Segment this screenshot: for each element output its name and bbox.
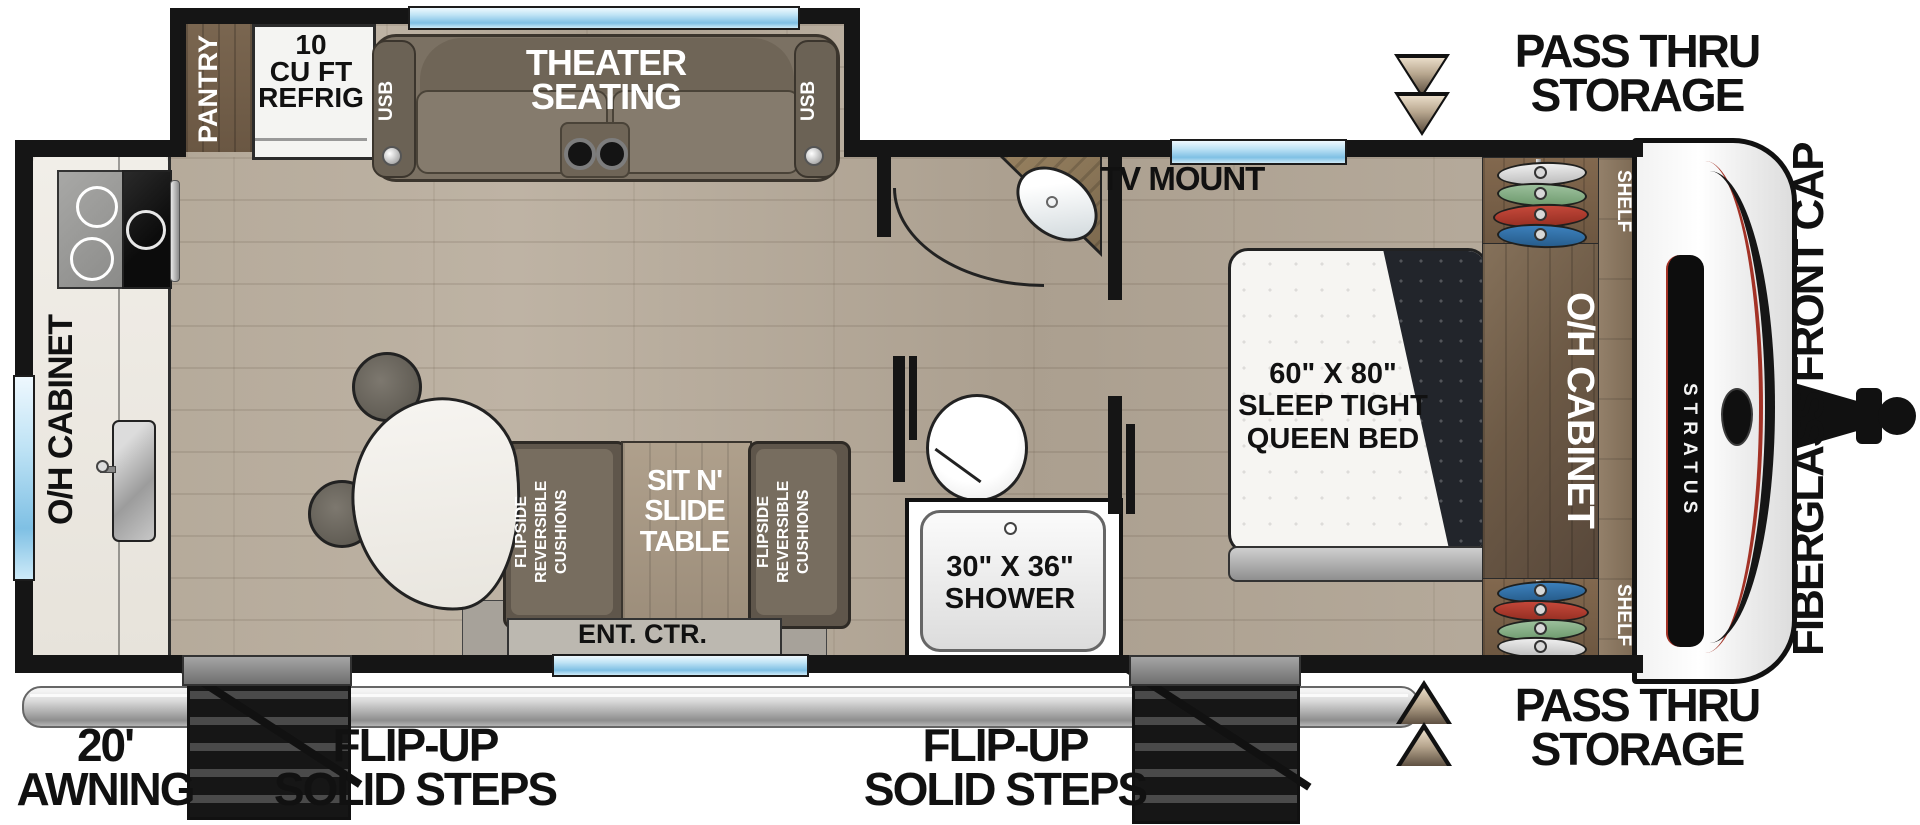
awning-line: AWNING (10, 768, 200, 812)
shower-line: 30" X 36" (918, 552, 1102, 584)
refrigerator-label: 10 CU FT REFRIG (254, 32, 368, 112)
window-slideout (408, 6, 800, 30)
window-door-side (552, 654, 809, 677)
bedroom-wall-stub (1126, 424, 1135, 514)
refrigerator-door-seam (255, 138, 367, 141)
stratus-brand-label: STRATUS (1670, 269, 1700, 635)
usb-port-label: USB (800, 58, 830, 144)
entry-door-right (1129, 655, 1301, 686)
flipside-cushions-label-right: FLIPSIDE REVERSIBLE CUSHIONS (754, 452, 840, 612)
slideout-wall-right (844, 8, 860, 157)
drain-icon (1046, 196, 1058, 208)
theater-seating-label: THEATER SEATING (448, 46, 764, 114)
pass-thru-line: STORAGE (1452, 728, 1822, 772)
flipside-cushions-label-left: FLIPSIDE REVERSIBLE CUSHIONS (512, 452, 612, 612)
bed-line: QUEEN BED (1238, 423, 1428, 455)
bath-wall-stub (909, 356, 917, 440)
rv-floorplan: O/H CABINET PANTRY 10 CU FT REFRIG USB U… (0, 0, 1920, 825)
cupholder-icon (596, 138, 628, 170)
entry-door-left (182, 655, 352, 686)
usb-port-label: USB (378, 58, 408, 144)
queen-bed-label: 60" X 80" SLEEP TIGHT QUEEN BED (1238, 358, 1428, 455)
steps-line: FLIP-UP (250, 724, 580, 768)
ent-ctr-label: ENT. CTR. (507, 622, 778, 648)
steps-line: FLIP-UP (820, 724, 1190, 768)
bed-line: 60" X 80" (1238, 358, 1428, 390)
recliner-button-icon (804, 146, 824, 166)
refrig-line: REFRIG (254, 85, 368, 112)
bedroom-oh-cabinet-label: O/H CABINET (1482, 250, 1598, 570)
pass-thru-line: PASS THRU (1452, 684, 1822, 728)
hanger-hook-icon (1534, 208, 1547, 221)
hanger-hook-icon (1534, 603, 1547, 616)
theater-line: THEATER (448, 46, 764, 80)
table-line: SLIDE (623, 496, 746, 526)
tv-mount-label: TV MOUNT (1100, 163, 1320, 194)
shelf-bottom-label: SHELF (1598, 577, 1632, 653)
pass-thru-line: PASS THRU (1452, 30, 1822, 74)
pass-thru-arrow-down-icon (1399, 96, 1445, 132)
awning-label: 20' AWNING (10, 724, 200, 811)
hitch-coupler-icon (1878, 397, 1916, 435)
cushion-line: FLIPSIDE (512, 452, 532, 612)
cushion-line: REVERSIBLE (774, 452, 794, 612)
awning-line: 20' (10, 724, 200, 768)
shower-line: SHOWER (918, 584, 1102, 616)
refrig-line: 10 (254, 32, 368, 59)
cushion-line: CUSHIONS (552, 452, 572, 612)
wall-top-left (15, 140, 177, 157)
pass-thru-line: STORAGE (1452, 74, 1822, 118)
pass-thru-storage-top-label: PASS THRU STORAGE (1452, 30, 1822, 117)
toilet (926, 394, 1028, 502)
recliner-button-icon (382, 146, 402, 166)
hanger-hook-icon (1534, 640, 1547, 653)
kitchen-sink (112, 420, 156, 542)
bath-wall-entry (877, 157, 891, 237)
slideout-wall-left (170, 8, 186, 157)
steps-line: SOLID STEPS (820, 768, 1190, 812)
shower-label: 30" X 36" SHOWER (918, 552, 1102, 616)
sit-n-slide-label: SIT N' SLIDE TABLE (623, 466, 746, 557)
bed-foot-bench (1228, 546, 1504, 582)
bath-wall-toilet (893, 356, 905, 482)
pass-thru-arrow-down-icon (1399, 58, 1445, 94)
window-kitchen (13, 375, 35, 581)
fiberglass-front-cap-label: FIBERGLASS FRONT CAP (1788, 132, 1848, 668)
dinette-end-block (462, 600, 509, 657)
kitchen-oh-cabinet-label: O/H CABINET (45, 285, 103, 555)
table-line: SIT N' (623, 466, 746, 496)
refrig-line: CU FT (254, 59, 368, 86)
oven-handle (170, 180, 180, 282)
hanger-hook-icon (1534, 166, 1547, 179)
bed-line: SLEEP TIGHT (1238, 390, 1428, 422)
burner-icon (70, 237, 114, 281)
pantry-label: PANTRY (196, 30, 242, 148)
cupholder-icon (564, 138, 596, 170)
fiberglass-front-cap: STRATUS (1632, 138, 1797, 684)
steps-left-label: FLIP-UP SOLID STEPS (250, 724, 580, 811)
bath-bedroom-wall-lower (1108, 396, 1122, 514)
pass-thru-storage-bottom-label: PASS THRU STORAGE (1452, 684, 1822, 771)
shelf-top-label: SHELF (1598, 160, 1632, 242)
cushion-line: FLIPSIDE (754, 452, 774, 612)
burner-icon (126, 210, 166, 250)
hanger-hook-icon (1534, 584, 1547, 597)
hanger-hook-icon (1534, 228, 1547, 241)
theater-line: SEATING (448, 80, 764, 114)
hanger-hook-icon (1534, 622, 1547, 635)
hanger-hook-icon (1534, 187, 1547, 200)
steps-line: SOLID STEPS (250, 768, 580, 812)
burner-icon (76, 186, 118, 228)
cushion-line: REVERSIBLE (532, 452, 552, 612)
cushion-line: CUSHIONS (794, 452, 814, 612)
table-line: TABLE (623, 527, 746, 557)
steps-right-label: FLIP-UP SOLID STEPS (820, 724, 1190, 811)
drain-icon (1004, 522, 1017, 535)
